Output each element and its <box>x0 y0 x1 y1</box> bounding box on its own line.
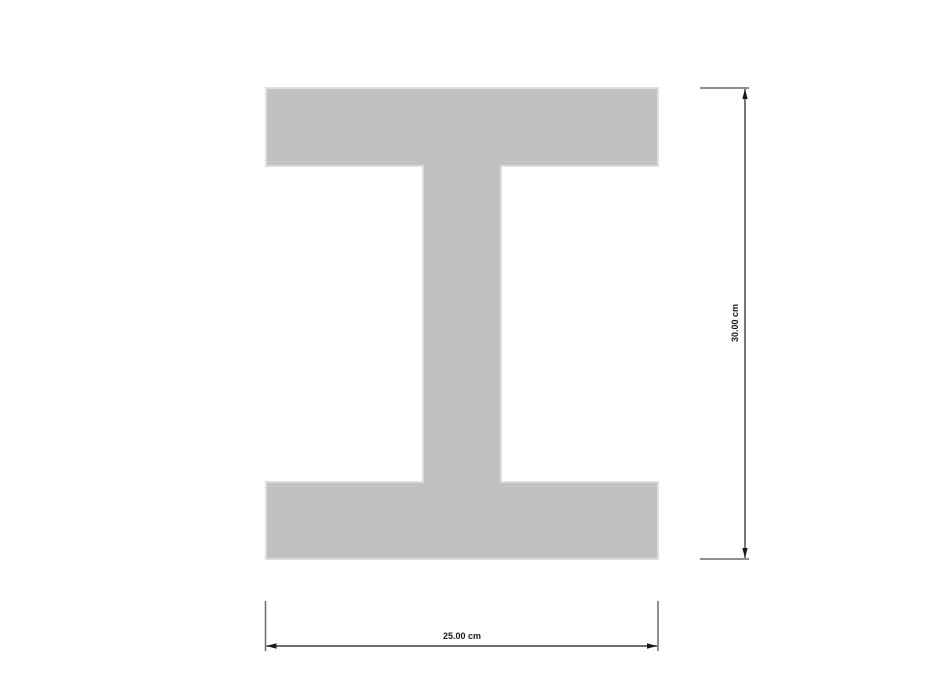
arrow-up-icon <box>742 89 747 99</box>
section-viewport[interactable]: 25.00 cm 30.00 cm <box>0 0 926 694</box>
height-dimension-label: 30.00 cm <box>729 293 741 353</box>
i-section-shape[interactable] <box>266 88 658 559</box>
arrow-left-icon <box>267 643 277 648</box>
arrow-right-icon <box>647 643 657 648</box>
arrow-down-icon <box>742 548 747 558</box>
cross-section-drawing <box>0 0 926 694</box>
width-dimension-label: 25.00 cm <box>266 630 658 642</box>
